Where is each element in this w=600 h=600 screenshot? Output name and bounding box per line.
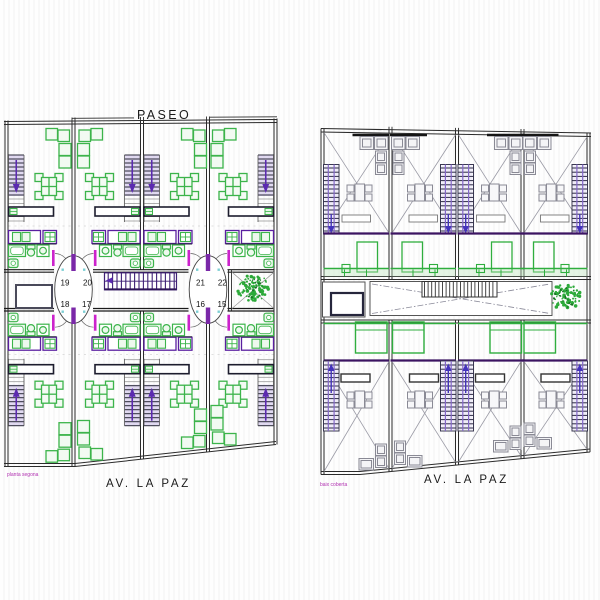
svg-text:19: 19 xyxy=(61,279,70,288)
svg-text:16: 16 xyxy=(196,300,205,309)
svg-text:17: 17 xyxy=(82,300,91,309)
svg-text:18: 18 xyxy=(61,300,70,309)
svg-text:21: 21 xyxy=(196,279,205,288)
svg-text:20: 20 xyxy=(83,279,92,288)
svg-text:22: 22 xyxy=(218,279,227,288)
svg-text:15: 15 xyxy=(218,300,227,309)
